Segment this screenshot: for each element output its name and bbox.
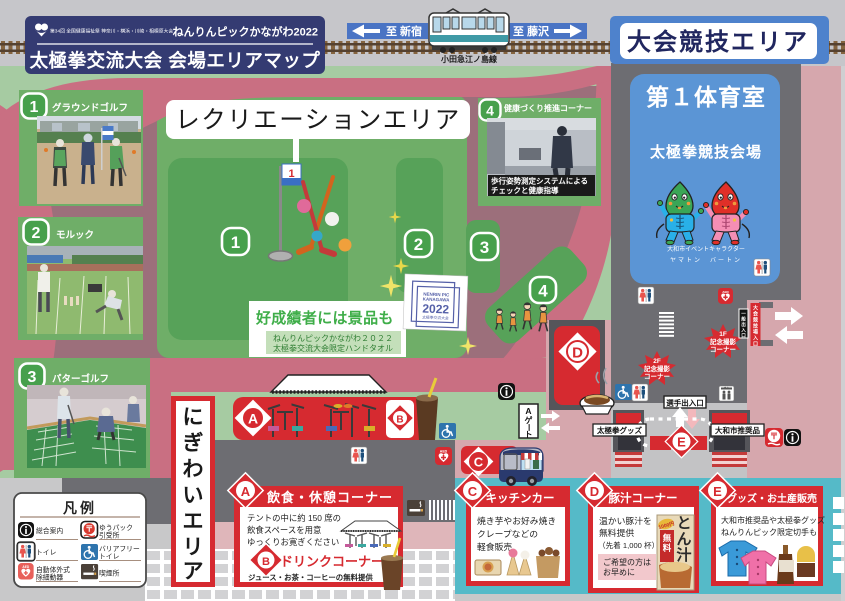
svg-text:1: 1	[231, 233, 240, 252]
svg-text:ドリンクコーナー: ドリンクコーナー	[280, 554, 384, 569]
svg-text:1: 1	[30, 99, 39, 116]
svg-text:太極拳交流大会限定ハンドタオル: 太極拳交流大会限定ハンドタオル	[273, 343, 393, 353]
svg-text:C: C	[474, 455, 484, 470]
svg-text:無: 無	[663, 533, 672, 543]
svg-text:料: 料	[663, 543, 672, 553]
svg-text:好成績者には景品も: 好成績者には景品も	[255, 309, 394, 327]
svg-text:至 藤沢: 至 藤沢	[513, 24, 550, 38]
svg-text:ヤマトン バートン: ヤマトン バートン	[670, 257, 742, 264]
svg-text:ゆっくりお寛ぎください: ゆっくりお寛ぎください	[247, 537, 339, 547]
svg-text:大和市イベントキャラクター: 大和市イベントキャラクター	[667, 245, 745, 253]
svg-text:4: 4	[538, 282, 548, 301]
svg-text:記念撮影: 記念撮影	[710, 337, 737, 346]
svg-text:4: 4	[486, 103, 494, 119]
svg-text:コーナー: コーナー	[710, 346, 736, 354]
svg-text:大和市推奨品: 大和市推奨品	[715, 425, 760, 435]
svg-text:3: 3	[28, 369, 37, 386]
svg-text:第34回 全国健康福祉祭 神奈川・横浜・川崎・相模原大会: 第34回 全国健康福祉祭 神奈川・横浜・川崎・相模原大会	[50, 28, 173, 35]
svg-text:2022: 2022	[422, 302, 449, 317]
svg-text:ご希望の方は: ご希望の方は	[603, 557, 651, 567]
svg-text:D: D	[572, 345, 583, 362]
svg-text:ぎ: ぎ	[183, 431, 204, 455]
svg-text:飲食・休憩コーナー: 飲食・休憩コーナー	[266, 490, 393, 505]
svg-text:B: B	[396, 415, 403, 426]
svg-text:大会競技エリア: 大会競技エリア	[627, 28, 809, 56]
svg-text:除細動器: 除細動器	[36, 573, 63, 582]
svg-text:グッズ・お土産販売: グッズ・お土産販売	[727, 492, 817, 505]
svg-text:会: 会	[752, 311, 758, 318]
svg-text:D: D	[590, 484, 599, 499]
svg-text:チェックと健康指導: チェックと健康指導	[491, 185, 559, 195]
svg-text:E: E	[677, 435, 686, 450]
svg-text:E: E	[713, 484, 722, 499]
svg-text:ト: ト	[525, 430, 533, 439]
svg-text:場: 場	[752, 329, 758, 336]
svg-text:凡例: 凡例	[63, 500, 97, 516]
svg-text:飲食スペースを用意: 飲食スペースを用意	[247, 525, 321, 535]
svg-text:太極拳グッズ: 太極拳グッズ	[597, 425, 642, 435]
svg-text:2F: 2F	[653, 358, 661, 365]
svg-text:わ: わ	[183, 458, 204, 481]
svg-text:A: A	[248, 411, 258, 427]
svg-text:バリアフリー: バリアフリー	[99, 545, 140, 553]
svg-text:引受所: 引受所	[99, 531, 120, 540]
svg-text:無料提供: 無料提供	[599, 527, 634, 538]
svg-text:ん: ん	[676, 531, 691, 548]
svg-text:3: 3	[480, 238, 489, 257]
svg-text:テントの中に約 150 席の: テントの中に約 150 席の	[247, 513, 341, 523]
svg-text:太極拳交流大会 会場エリアマップ: 太極拳交流大会 会場エリアマップ	[29, 50, 321, 71]
svg-text:焼き芋やお好み焼き: 焼き芋やお好み焼き	[477, 515, 556, 526]
svg-text:大和市推奨品や太極拳グッズ: 大和市推奨品や太極拳グッズ	[721, 515, 825, 525]
svg-text:1F: 1F	[719, 331, 727, 338]
svg-text:〒: 〒	[85, 525, 93, 534]
svg-text:喫煙所: 喫煙所	[99, 569, 120, 578]
svg-text:グラウンドゴルフ: グラウンドゴルフ	[52, 102, 128, 114]
svg-text:至 新宿: 至 新宿	[386, 24, 422, 38]
svg-text:歩行姿勢測定システムによる: 歩行姿勢測定システムによる	[491, 176, 588, 186]
svg-text:第１体育室: 第１体育室	[646, 84, 766, 110]
svg-text:A: A	[241, 484, 251, 499]
svg-text:キッチンカー: キッチンカー	[486, 492, 555, 505]
svg-text:記念撮影: 記念撮影	[644, 364, 671, 373]
svg-text:レクリエーションエリア: レクリエーションエリア	[175, 107, 461, 134]
svg-text:太極拳競技会場: 太極拳競技会場	[650, 143, 762, 161]
svg-text:リ: リ	[183, 536, 204, 559]
svg-text:トイレ: トイレ	[99, 554, 120, 561]
svg-text:ねんりんピックかながわ２０２２: ねんりんピックかながわ２０２２	[273, 333, 393, 343]
svg-text:温かい豚汁を: 温かい豚汁を	[599, 515, 652, 526]
svg-text:に: に	[183, 406, 204, 429]
svg-text:ゆうパック: ゆうパック	[99, 524, 133, 532]
svg-text:軽食販売: 軽食販売	[477, 541, 512, 552]
svg-text:ねんりんピックかながわ2022: ねんりんピックかながわ2022	[173, 25, 318, 39]
svg-text:大: 大	[753, 305, 758, 312]
svg-text:一: 一	[741, 311, 746, 316]
svg-text:モルック: モルック	[56, 230, 94, 241]
svg-text:B: B	[262, 556, 270, 568]
svg-text:トイレ: トイレ	[36, 550, 57, 557]
svg-text:C: C	[468, 484, 478, 499]
svg-text:総合案内: 総合案内	[36, 526, 63, 535]
svg-text:1: 1	[288, 168, 294, 180]
svg-text:自動体外式: 自動体外式	[36, 565, 70, 574]
svg-text:ねんりんピック限定切手も: ねんりんピック限定切手も	[721, 527, 817, 537]
svg-text:い: い	[183, 484, 204, 507]
svg-text:お早めに: お早めに	[603, 568, 635, 577]
svg-text:パターゴルフ: パターゴルフ	[52, 373, 109, 385]
svg-text:2: 2	[32, 225, 41, 242]
svg-text:と: と	[676, 515, 691, 532]
svg-text:選手出入口: 選手出入口	[666, 398, 704, 408]
svg-text:口: 口	[753, 342, 758, 348]
svg-text:ア: ア	[183, 560, 204, 583]
svg-text:クレープなどの: クレープなどの	[477, 529, 538, 539]
svg-text:AED: AED	[22, 565, 29, 569]
svg-text:2: 2	[414, 235, 423, 254]
svg-text:A: A	[525, 406, 531, 416]
svg-text:太極拳交流大会: 太極拳交流大会	[422, 315, 449, 321]
svg-text:エ: エ	[183, 510, 204, 533]
svg-text:健康づくり推進コーナー: 健康づくり推進コーナー	[504, 103, 592, 113]
svg-text:コーナー: コーナー	[644, 373, 670, 381]
svg-text:汁: 汁	[676, 546, 691, 564]
svg-text:ジュース・お茶・コーヒーの無料提供: ジュース・お茶・コーヒーの無料提供	[248, 573, 373, 582]
svg-text:競: 競	[753, 317, 758, 324]
svg-text:小田急江ノ島線: 小田急江ノ島線	[440, 54, 497, 64]
svg-text:豚汁コーナー: 豚汁コーナー	[609, 491, 678, 505]
svg-text:（先着 1,000 杯）: （先着 1,000 杯）	[598, 540, 659, 550]
